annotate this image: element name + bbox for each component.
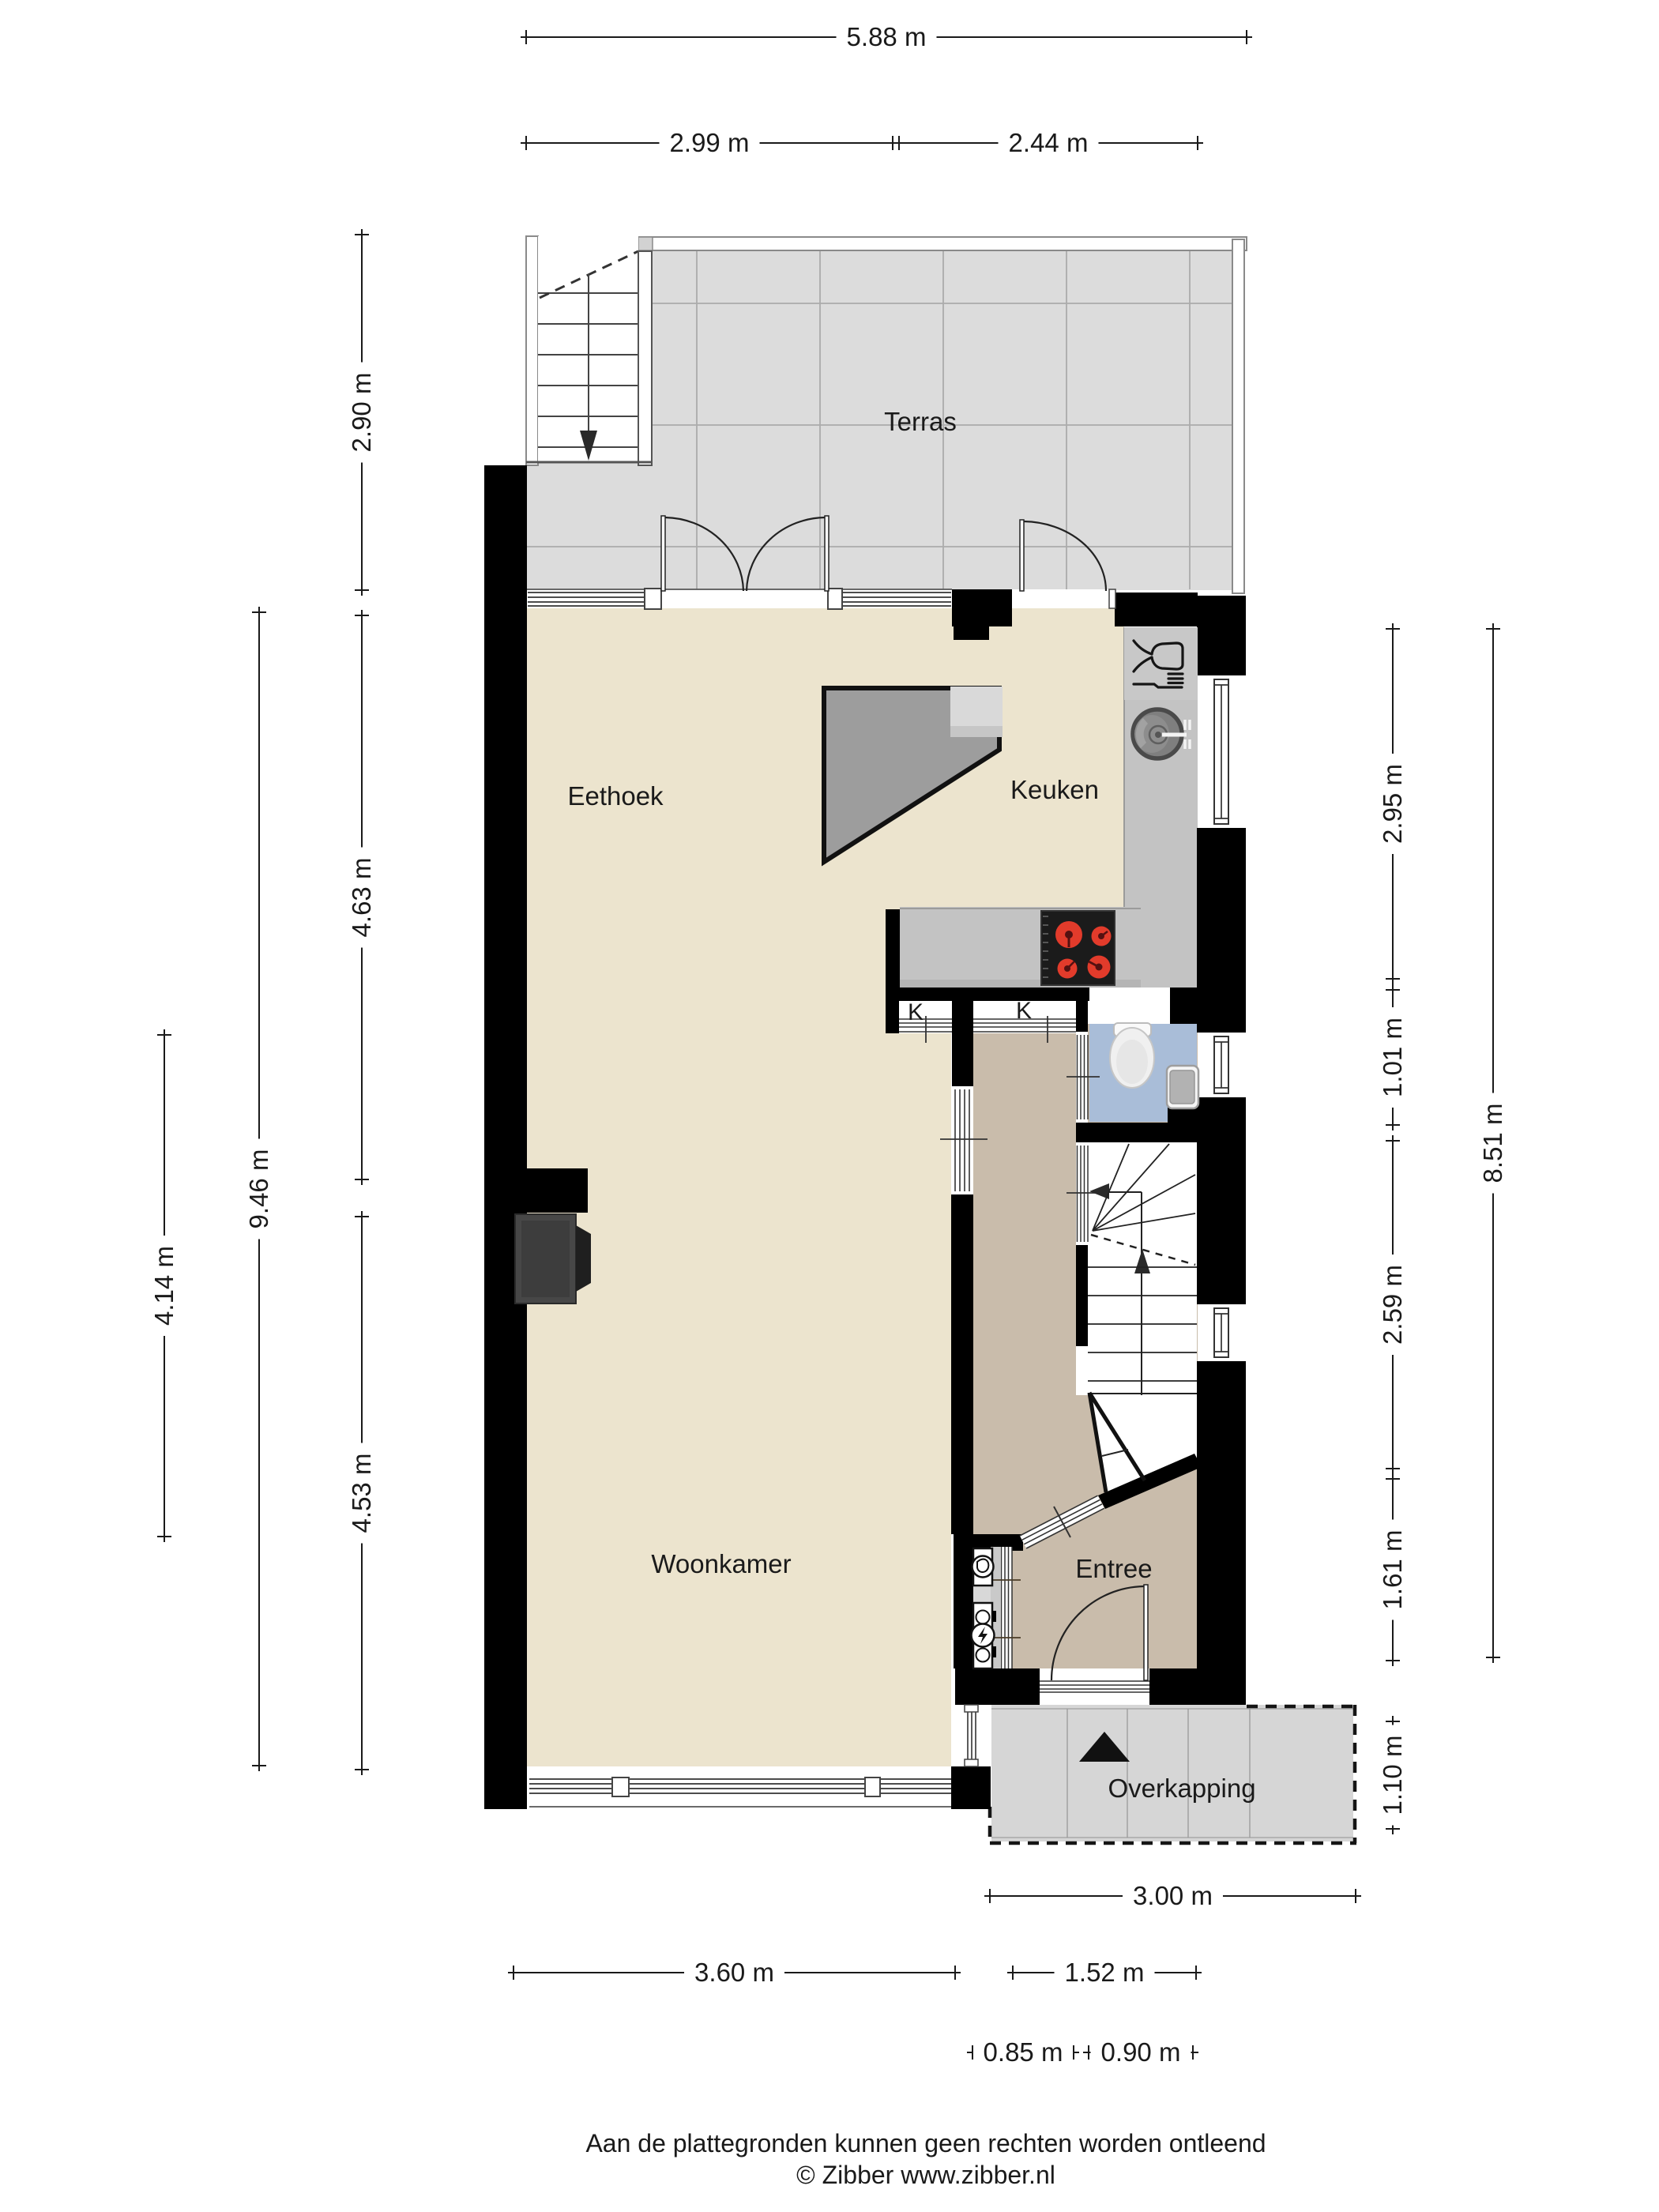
svg-text:1.61 m: 1.61 m — [1378, 1530, 1407, 1610]
svg-text:5.88 m: 5.88 m — [847, 22, 927, 51]
svg-text:Woonkamer: Woonkamer — [651, 1549, 791, 1578]
svg-text:2.44 m: 2.44 m — [1009, 128, 1089, 157]
svg-text:K: K — [908, 999, 924, 1025]
svg-text:Eethoek: Eethoek — [567, 781, 664, 811]
svg-text:K: K — [1016, 998, 1032, 1024]
svg-text:2.90 m: 2.90 m — [347, 373, 376, 453]
svg-text:4.14 m: 4.14 m — [149, 1246, 179, 1326]
svg-text:8.51 m: 8.51 m — [1478, 1104, 1507, 1183]
svg-text:2.99 m: 2.99 m — [670, 128, 750, 157]
svg-text:1.01 m: 1.01 m — [1378, 1018, 1407, 1097]
svg-text:Aan de plattegronden kunnen ge: Aan de plattegronden kunnen geen rechten… — [585, 2129, 1266, 2157]
svg-text:4.63 m: 4.63 m — [347, 858, 376, 938]
svg-text:2.59 m: 2.59 m — [1378, 1265, 1407, 1345]
svg-text:0.85 m: 0.85 m — [984, 2037, 1063, 2067]
svg-text:Terras: Terras — [884, 407, 957, 436]
svg-text:Overkapping: Overkapping — [1108, 1774, 1255, 1803]
svg-text:9.46 m: 9.46 m — [244, 1149, 273, 1229]
svg-text:0.90 m: 0.90 m — [1101, 2037, 1181, 2067]
svg-text:3.60 m: 3.60 m — [694, 1958, 774, 1987]
svg-text:1.52 m: 1.52 m — [1065, 1958, 1145, 1987]
svg-text:Entree: Entree — [1075, 1554, 1152, 1583]
svg-text:1.10 m: 1.10 m — [1378, 1736, 1407, 1815]
svg-text:© Zibber www.zibber.nl: © Zibber www.zibber.nl — [796, 2161, 1055, 2189]
svg-text:Keuken: Keuken — [1010, 775, 1099, 804]
svg-text:3.00 m: 3.00 m — [1133, 1881, 1213, 1910]
svg-text:2.95 m: 2.95 m — [1378, 764, 1407, 844]
svg-text:4.53 m: 4.53 m — [347, 1454, 376, 1533]
